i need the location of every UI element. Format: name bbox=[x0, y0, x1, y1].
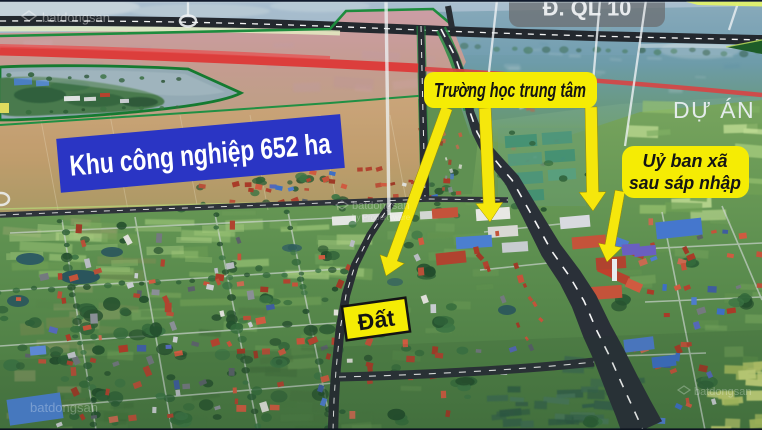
svg-text:batdongsan: batdongsan bbox=[694, 386, 752, 398]
svg-text:Uỷ ban xã: Uỷ ban xã bbox=[642, 151, 727, 171]
svg-text:batdongsan: batdongsan bbox=[42, 10, 110, 25]
svg-text:Đ. QL 10: Đ. QL 10 bbox=[543, 0, 632, 21]
svg-text:DỰ ÁN Đ: DỰ ÁN Đ bbox=[673, 97, 762, 123]
svg-text:sau sáp nhập: sau sáp nhập bbox=[629, 173, 741, 193]
svg-text:batdongsan: batdongsan bbox=[30, 400, 98, 415]
svg-text:batdongsan: batdongsan bbox=[352, 200, 410, 212]
svg-text:Đất: Đất bbox=[356, 304, 397, 335]
svg-text:Trường học trung tâm: Trường học trung tâm bbox=[434, 80, 586, 102]
svg-text:by Propertyware: by Propertyware bbox=[352, 213, 411, 222]
